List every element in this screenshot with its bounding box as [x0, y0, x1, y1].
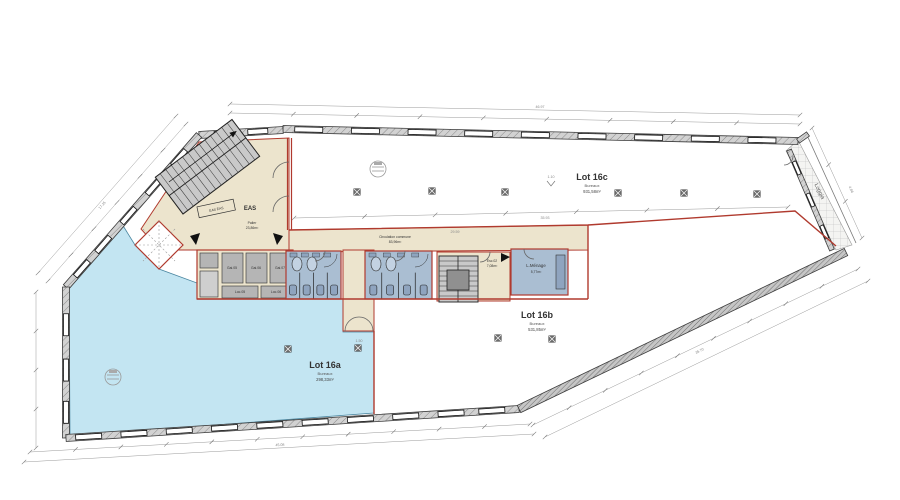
lot-16b-category: Bureaux	[530, 321, 545, 326]
cell-label: Gai.06	[251, 266, 261, 270]
dim-stub: 1.50	[356, 339, 363, 343]
lot-16c-category: Bureaux	[585, 183, 600, 188]
cell-label: Loc.05	[235, 290, 245, 294]
floor-plan-svg: Gai.05 Gai.06 Gai.07 Loc.05 Loc.06 L.Mén…	[0, 0, 900, 500]
esc-label: Esc.02	[487, 259, 497, 263]
floor-plan-canvas: Gai.05 Gai.06 Gai.07 Loc.05 Loc.06 L.Mén…	[0, 0, 900, 500]
lot-16a-area: 298,33m²	[316, 377, 334, 382]
cell-label: Gai.07	[275, 266, 285, 270]
dim-left: 17.25	[98, 201, 107, 210]
palier-label: Palier	[248, 221, 258, 225]
palier-area: 23,86m²	[246, 226, 259, 230]
circulation-label: Circulation commune	[379, 235, 411, 239]
esc-area: 7,08m²	[487, 264, 498, 268]
room-area-menage: 5,77m²	[531, 270, 542, 274]
dim-loggia: 4.86	[848, 186, 855, 194]
dim-diag-right: 35.70	[695, 347, 705, 355]
cleaning-room: L.Ménage 5,77m²	[511, 249, 568, 295]
staircase-secondary	[439, 256, 478, 302]
cell-label: Loc.06	[271, 290, 281, 294]
lot-16a-label: Lot 16a	[309, 360, 342, 370]
lot-16a-category: Bureaux	[318, 371, 333, 376]
room-label-menage: L.Ménage	[526, 263, 546, 268]
dim-top-inner: 35.93	[541, 216, 550, 220]
lot-16b-label: Lot 16b	[521, 310, 554, 320]
lot-16b-area: 531,85m²	[528, 327, 546, 332]
dim-bottom: 45.08	[275, 443, 284, 448]
cell-label: Gai.05	[227, 266, 237, 270]
lot-16c-area: 931,58m²	[583, 189, 601, 194]
lot-16c-label: Lot 16c	[576, 172, 608, 182]
dim-top: 46.97	[536, 105, 545, 109]
eas-label: EAS	[244, 206, 256, 212]
circulation-area: 83,96m²	[389, 240, 402, 244]
technical-rooms: Gai.05 Gai.06 Gai.07 Loc.05 Loc.06	[197, 250, 293, 299]
dim-corridor: 29.59	[451, 230, 460, 234]
marker-circle-icon	[370, 161, 386, 177]
level-marker-icon: 1.10	[547, 175, 555, 186]
svg-text:1.10: 1.10	[548, 175, 555, 179]
